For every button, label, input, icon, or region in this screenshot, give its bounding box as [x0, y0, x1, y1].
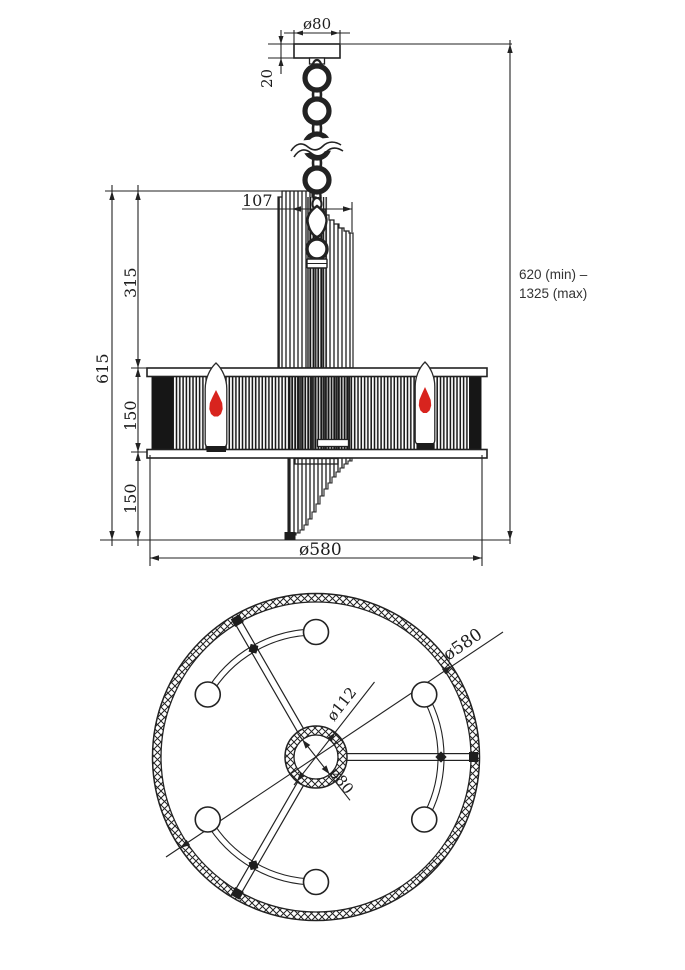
cascade-finial — [285, 532, 296, 540]
dimension-canopy-diameter: ø80 — [284, 15, 350, 44]
shade-height-label: 150 — [121, 400, 140, 431]
candle-holder — [412, 807, 437, 832]
lower-section-label: 150 — [121, 483, 140, 514]
candle-bulb-right — [415, 362, 435, 449]
chain-ring — [305, 66, 329, 90]
dimension-canopy-height: 20 — [258, 30, 294, 88]
shade-center-dense-rods — [288, 377, 351, 450]
shade-top-rim — [147, 368, 487, 377]
front-elevation-view: ø80 20 — [93, 15, 588, 566]
plan-view: ø580 ø112 ø80 — [153, 594, 504, 921]
suspension-chain — [289, 60, 344, 204]
hanging-height-max-label: 1325 (max) — [519, 286, 587, 301]
dimension-chained-sections: 315 150 150 — [121, 185, 141, 546]
candle-holder — [304, 870, 329, 895]
dimension-hanging-height: 620 (min) – 1325 (max) — [507, 40, 587, 544]
dimension-body-height: 615 — [93, 185, 115, 546]
candle-holder — [195, 682, 220, 707]
hanging-height-min-label: 620 (min) – — [519, 267, 588, 282]
spoke-right — [342, 751, 478, 762]
hook-ring — [307, 239, 327, 259]
hub-outer-diameter-label: ø112 — [323, 684, 360, 725]
canopy-diameter-label: ø80 — [303, 15, 331, 33]
candle-holder — [412, 682, 437, 707]
shade-right-edge-dark — [469, 377, 481, 450]
spoke-lower-left — [230, 777, 308, 900]
shade-left-edge-dark — [152, 377, 173, 450]
chandelier-dimension-drawing: ø80 20 — [0, 0, 685, 970]
socket-bracket — [318, 440, 349, 447]
upper-section-label: 315 — [121, 267, 140, 298]
candle-base — [207, 446, 227, 452]
technical-drawing-page: ø80 20 — [0, 0, 685, 970]
spoke-rim-junction — [469, 752, 478, 762]
cluster-width-label: 107 — [242, 191, 273, 210]
candle-holder — [304, 620, 329, 645]
body-height-label: 615 — [93, 353, 112, 384]
hook-body — [307, 206, 326, 237]
cascade-silhouette — [288, 458, 352, 536]
spoke-upper-left — [230, 614, 308, 737]
chain-ring — [305, 99, 329, 123]
chain-ring — [305, 168, 329, 192]
candle-holder — [195, 807, 220, 832]
candle-base — [417, 443, 434, 449]
candle-bulb-left — [205, 363, 227, 452]
lower-cascade — [285, 458, 353, 540]
shade-diameter-label: ø580 — [299, 540, 342, 560]
drum-shade — [147, 368, 487, 458]
canopy-height-label: 20 — [258, 69, 276, 88]
shade-bottom-rim — [147, 450, 487, 459]
